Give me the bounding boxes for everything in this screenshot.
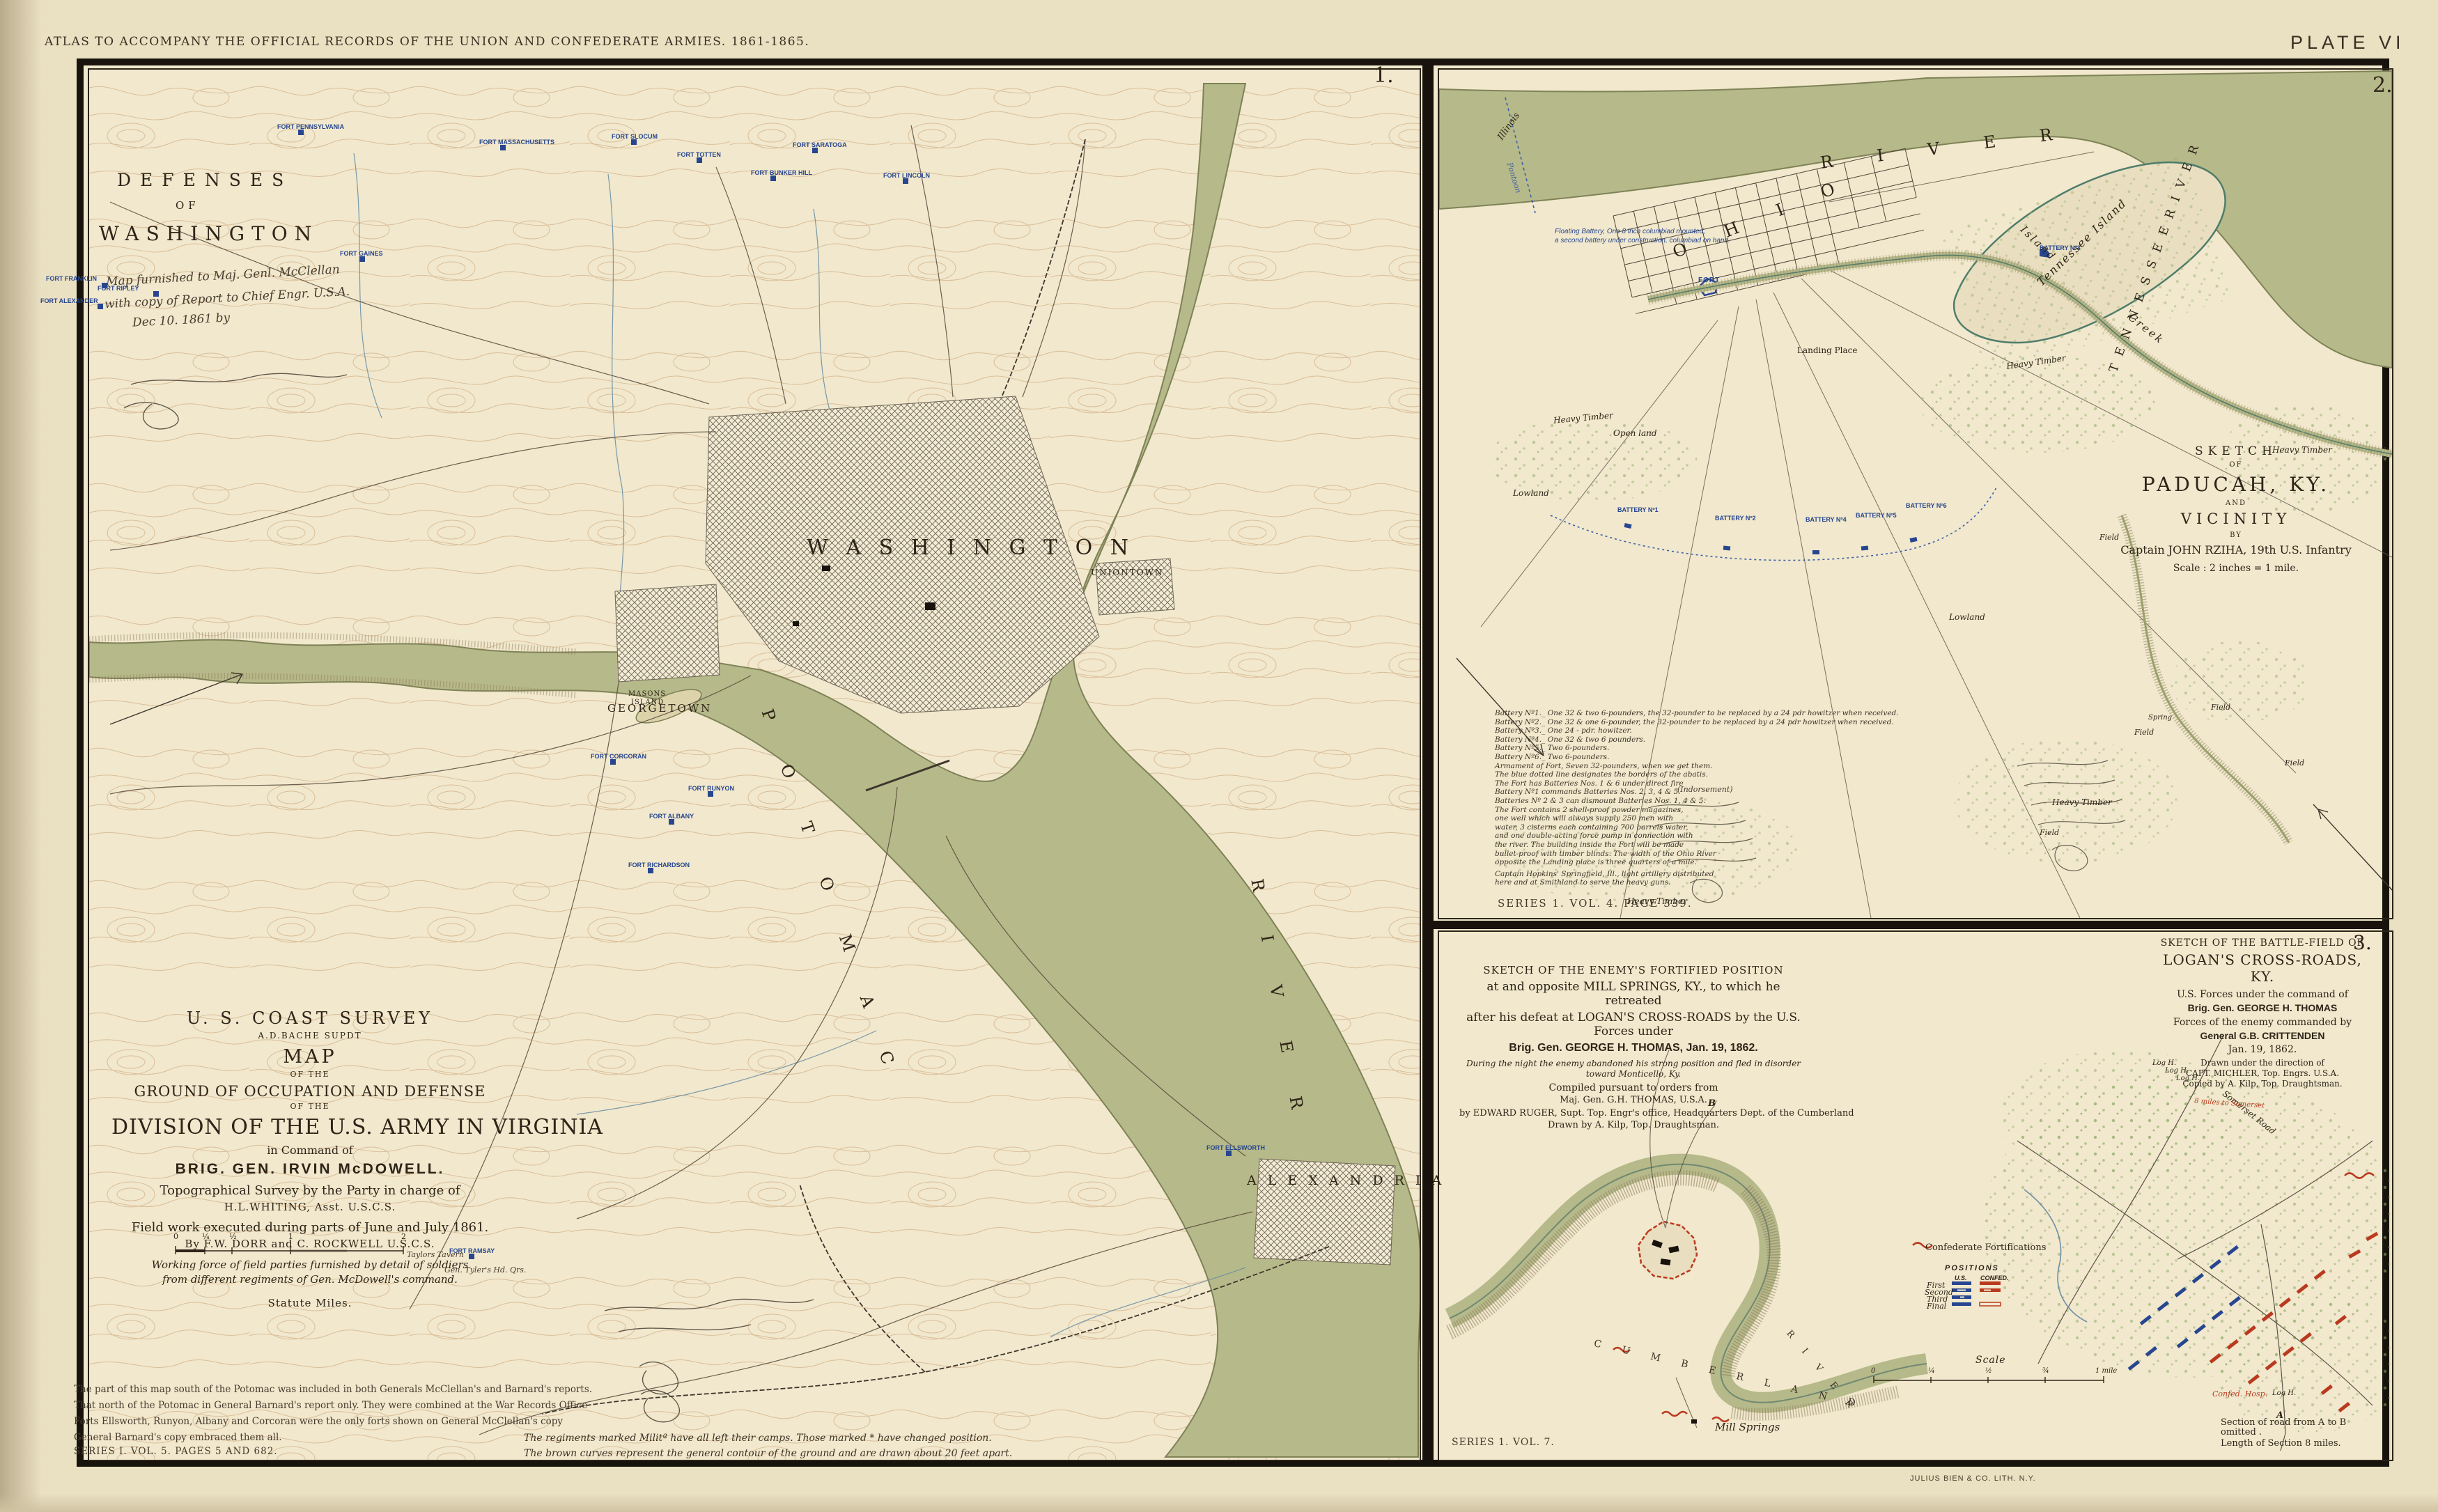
tb-line: Maj. Gen. G.H. THOMAS, U.S.A. <box>1459 1095 1808 1105</box>
printer-credit: JULIUS BIEN & CO. LITH. N.Y. <box>1910 1475 2036 1483</box>
tb-line: Drawn by A. Kilp, Top. Draughtsman. <box>1459 1120 1808 1130</box>
tb-line: LOGAN'S CROSS-ROADS, KY. <box>2158 951 2367 985</box>
plate-number: PLATE VI <box>2290 33 2405 52</box>
label-heavy-timber-4: Heavy Timber <box>2052 798 2112 806</box>
label-spring: Spring <box>2148 715 2172 722</box>
section-note-1: Section of road from A to B <box>2221 1418 2346 1427</box>
map2-series: SERIES 1. VOL. 4. PAGE 339. <box>1498 898 1693 909</box>
label-battery-5: BATTERY Nº5 <box>1856 513 1897 519</box>
tb-line: toward Monticello, Ky. <box>1459 1069 1808 1079</box>
scan-edge-shadow-bottom <box>0 1494 2438 1512</box>
note-line: the river. The building inside the Fort … <box>1495 841 1899 850</box>
tb-line: after his defeat at LOGAN'S CROSS-ROADS … <box>1459 1011 1808 1038</box>
section-note-3: Length of Section 8 miles. <box>2221 1439 2341 1448</box>
label-uniontown: UNIONTOWN <box>1091 568 1163 577</box>
note-line: Armament of Fort, Seven 32-pounders, whe… <box>1495 762 1899 771</box>
tb-line: from different regiments of Gen. McDowel… <box>111 1273 508 1286</box>
label-battery-2: BATTERY Nº2 <box>1715 515 1756 522</box>
scale-tick: 1 <box>288 1233 293 1240</box>
tb-line: SKETCH <box>2111 444 2361 458</box>
label-open-land: Open land <box>1613 429 1657 437</box>
map1-title-line3: WASHINGTON <box>99 224 318 244</box>
tb-line: VICINITY <box>2111 511 2361 527</box>
label-battery-1: BATTERY Nº1 <box>1617 507 1659 513</box>
fort-label: FORT FRANKLIN <box>46 276 97 282</box>
label-floating-battery-2: a second battery under construction, col… <box>1555 237 1730 244</box>
tb-line: H.L.WHITING, Asst. U.S.C.S. <box>111 1201 508 1213</box>
label-field-3: Field <box>2211 703 2230 711</box>
map1-regiments-note-1: The regiments marked Militª have all lef… <box>524 1433 992 1443</box>
label-battery-4: BATTERY Nº4 <box>1806 517 1847 523</box>
white-house-block <box>822 566 830 571</box>
tb-line: Statute Miles. <box>111 1297 508 1309</box>
legend-bars <box>1952 1281 2001 1306</box>
tb-line: by EDWARD RUGER, Supt. Top. Engr's offic… <box>1459 1108 1808 1119</box>
tb-line: GROUND OF OCCUPATION AND DEFENSE <box>111 1083 508 1100</box>
logans-title-block: SKETCH OF THE BATTLE-FIELD OF LOGAN'S CR… <box>2158 937 2367 1089</box>
note-line: General Barnard's copy embraced them all… <box>74 1430 592 1446</box>
map2-number: 2. <box>2373 75 2393 96</box>
note-line: The part of this map south of the Potoma… <box>74 1382 592 1398</box>
fort-label: FORT MASSACHUSETTS <box>479 139 554 146</box>
fort-label: FORT RIPLEY <box>98 286 139 292</box>
tb-line: Topographical Survey by the Party in cha… <box>111 1183 508 1198</box>
fort-label: FORT PENNSYLVANIA <box>277 124 344 130</box>
legend-fortifications: Confederate Fortifications <box>1925 1243 2046 1252</box>
fort-label: FORT SARATOGA <box>793 142 847 148</box>
scale-tick: ½ <box>1985 1368 1992 1375</box>
note-line: Captain Hopkins' Springfield, Ill., ligh… <box>1495 870 1899 879</box>
map2-title-block: SKETCH OF PADUCAH, KY. AND VICINITY BY C… <box>2111 444 2361 574</box>
map1-title-block: U. S. COAST SURVEY A.D.BACHE SUPDT MAP O… <box>111 1008 508 1309</box>
label-log-h-4: Log H. <box>2272 1390 2296 1397</box>
note-line: Battery Nº1._ One 32 & two 6-pounders, t… <box>1495 709 1899 718</box>
scale-tick: ¼ <box>1928 1368 1935 1375</box>
legend-col-us: U.S. <box>1955 1275 1967 1281</box>
tb-line: Drawn under the direction of <box>2158 1058 2367 1068</box>
map1-regiments-note-2: The brown curves represent the general c… <box>524 1449 1012 1458</box>
section-note-2: omitted . <box>2221 1428 2262 1437</box>
label-lowland-2: Lowland <box>1949 613 1985 621</box>
note-line: Battery Nº4._ One 32 & two 6 pounders. <box>1495 735 1899 745</box>
label-confed-hosp: Confed. Hosp. <box>2212 1390 2267 1398</box>
note-line: Battery Nº6._ Two 6-pounders. <box>1495 753 1899 762</box>
tb-line: PADUCAH, KY. <box>2111 473 2361 496</box>
map2-notes: Battery Nº1._ One 32 & two 6-pounders, t… <box>1495 709 1899 887</box>
map1-title-line2: OF <box>176 201 200 211</box>
tb-line: Compiled pursuant to orders from <box>1459 1082 1808 1093</box>
label-battery-6: BATTERY Nº6 <box>1906 503 1947 509</box>
note-line: The Fort contains 2 shell-proof powder m… <box>1495 806 1899 815</box>
tb-line: BY <box>2111 531 2361 539</box>
scale-tick: ½ <box>229 1233 237 1240</box>
tb-line: MAP <box>111 1046 508 1068</box>
scale-tick: 2 <box>401 1233 406 1240</box>
label-alexandria: A L E X A N D R I A <box>1247 1174 1445 1187</box>
fort-label: FORT GAINES <box>340 251 383 257</box>
fort-label: FORT ALEXANDER <box>40 298 98 304</box>
label-mill-springs: Mill Springs <box>1715 1422 1780 1433</box>
entrenchment-ring <box>1638 1222 1697 1279</box>
note-line: bullet-proof with timber blinds. The wid… <box>1495 850 1899 859</box>
scan-edge-shadow-left <box>0 0 42 1512</box>
marker-b: B <box>1708 1099 1716 1108</box>
fort-label: FORT ELLSWORTH <box>1206 1145 1265 1151</box>
tb-line: DIVISION OF THE U.S. ARMY IN VIRGINIA <box>111 1115 508 1139</box>
fort-label: FORT LINCOLN <box>883 173 930 179</box>
fort-label: FORT RICHARDSON <box>628 862 690 868</box>
note-line: opposite the Landing place is three quar… <box>1495 858 1899 867</box>
tb-line: at and opposite MILL SPRINGS, KY., to wh… <box>1459 980 1808 1008</box>
fort-label: FORT BUNKER HILL <box>751 170 812 176</box>
label-floating-battery-1: Floating Battery, One 8 inch columbiad m… <box>1555 228 1705 235</box>
capitol-block <box>925 602 935 610</box>
note-line: The blue dotted line designates the bord… <box>1495 770 1899 779</box>
mill-springs-title-block: SKETCH OF THE ENEMY'S FORTIFIED POSITION… <box>1459 964 1808 1130</box>
note-line: here and at Smithland to serve the heavy… <box>1495 878 1899 887</box>
fort-label: FORT RUNYON <box>688 786 734 792</box>
note-line: one well which will always supply 250 me… <box>1495 814 1899 823</box>
label-lowland-1: Lowland <box>1513 489 1549 497</box>
fort-label: FORT SLOCUM <box>612 134 658 140</box>
scale-tick: 0 <box>173 1233 178 1240</box>
tb-line: Brig. Gen. GEORGE H. THOMAS, Jan. 19, 18… <box>1459 1042 1808 1054</box>
legend-row-final: Final <box>1927 1302 1946 1310</box>
tb-line: U. S. COAST SURVEY <box>111 1008 508 1028</box>
fort-label: FORT TOTTEN <box>677 152 721 158</box>
tb-line: in Command of <box>111 1144 508 1157</box>
note-line: That north of the Potomac in General Bar… <box>74 1398 592 1414</box>
note-line: Battery Nº5._ Two 6-pounders. <box>1495 744 1899 753</box>
label-masons-island-2: ISLAND <box>631 699 664 706</box>
label-masons-island-1: MASONS <box>628 691 666 698</box>
label-log-h-3: Log H. <box>2176 1075 2200 1082</box>
tb-line: Captain JOHN RZIHA, 19th U.S. Infantry <box>2111 543 2361 556</box>
tb-line: SKETCH OF THE ENEMY'S FORTIFIED POSITION <box>1459 964 1808 976</box>
atlas-sheet: ATLAS TO ACCOMPANY THE OFFICIAL RECORDS … <box>0 0 2438 1512</box>
tb-line: Scale : 2 inches = 1 mile. <box>2111 563 2361 574</box>
tb-line: Forces of the enemy commanded by <box>2158 1017 2367 1028</box>
frame-divider-vertical <box>1422 59 1434 1467</box>
tb-line: SKETCH OF THE BATTLE-FIELD OF <box>2158 937 2367 949</box>
map2-indorsement: (Indorsement) <box>1677 786 1733 793</box>
tb-line: General G.B. CRITTENDEN <box>2158 1030 2367 1041</box>
legend-col-confed: CONFED. <box>1980 1275 2009 1281</box>
label-log-h-2: Log H. <box>2165 1068 2189 1075</box>
label-washington: W A S H I N G T O N <box>807 538 1134 559</box>
tb-line: During the night the enemy abandoned his… <box>1459 1059 1808 1068</box>
label-landing-place: Landing Place <box>1797 346 1857 354</box>
tb-line: A.D.BACHE SUPDT <box>111 1031 508 1041</box>
tb-line: OF <box>2111 461 2361 469</box>
map3-series: SERIES 1. VOL. 7. <box>1452 1437 1555 1447</box>
note-line: Battery Nº3._ One 24 - pdr. howitzer. <box>1495 726 1899 735</box>
tb-line: Field work executed during parts of June… <box>111 1220 508 1235</box>
label-field-2: Field <box>2134 728 2154 736</box>
fort-label: FORT ALBANY <box>649 813 694 820</box>
frame-divider-horizontal <box>1427 921 2389 929</box>
note-line: Battery Nº2._ One 32 & one 6-pounder, th… <box>1495 718 1899 727</box>
map1-notes: The part of this map south of the Potoma… <box>74 1382 592 1446</box>
atlas-header: ATLAS TO ACCOMPANY THE OFFICIAL RECORDS … <box>45 36 809 48</box>
tb-line: OF THE <box>111 1070 508 1079</box>
scale-tick: ¼ <box>202 1233 210 1240</box>
tb-line: BRIG. GEN. IRVIN McDOWELL. <box>111 1161 508 1178</box>
tb-line: OF THE <box>111 1102 508 1111</box>
note-line: and one double-acting force pump in conn… <box>1495 832 1899 841</box>
tb-line: Brig. Gen. GEORGE H. THOMAS <box>2158 1002 2367 1013</box>
map1-number: 1. <box>1374 65 1394 86</box>
tb-line: AND <box>2111 499 2361 507</box>
map1-scale-bar <box>173 1244 410 1255</box>
tb-line: Working force of field parties furnished… <box>111 1258 508 1271</box>
label-field-4: Field <box>2285 759 2304 767</box>
label-fort: FORT <box>1698 277 1720 284</box>
logans-scale-label: Scale <box>1975 1355 2006 1365</box>
map1-series: SERIES I. VOL. 5. PAGES 5 AND 682. <box>74 1447 278 1457</box>
scale-tick: 1 mile <box>2095 1368 2117 1375</box>
scale-tick: 0 <box>1871 1368 1875 1375</box>
tb-line: U.S. Forces under the command of <box>2158 989 2367 1000</box>
label-field-5: Field <box>2040 829 2059 836</box>
map1-title-line1: DEFENSES <box>117 171 293 189</box>
legend-positions-title: POSITIONS <box>1945 1265 1999 1272</box>
note-line: water, 3 cisterns each containing 700 ba… <box>1495 823 1899 832</box>
note-line: Forts Ellsworth, Runyon, Albany and Corc… <box>74 1414 592 1430</box>
note-line: Batteries Nº 2 & 3 can dismount Batterie… <box>1495 797 1899 806</box>
fort-label: FORT CORCORAN <box>591 754 646 760</box>
tb-line: Jan. 19, 1862. <box>2158 1044 2367 1055</box>
label-log-h-1: Log H. <box>2152 1060 2176 1067</box>
scale-tick: ¾ <box>2042 1368 2049 1375</box>
